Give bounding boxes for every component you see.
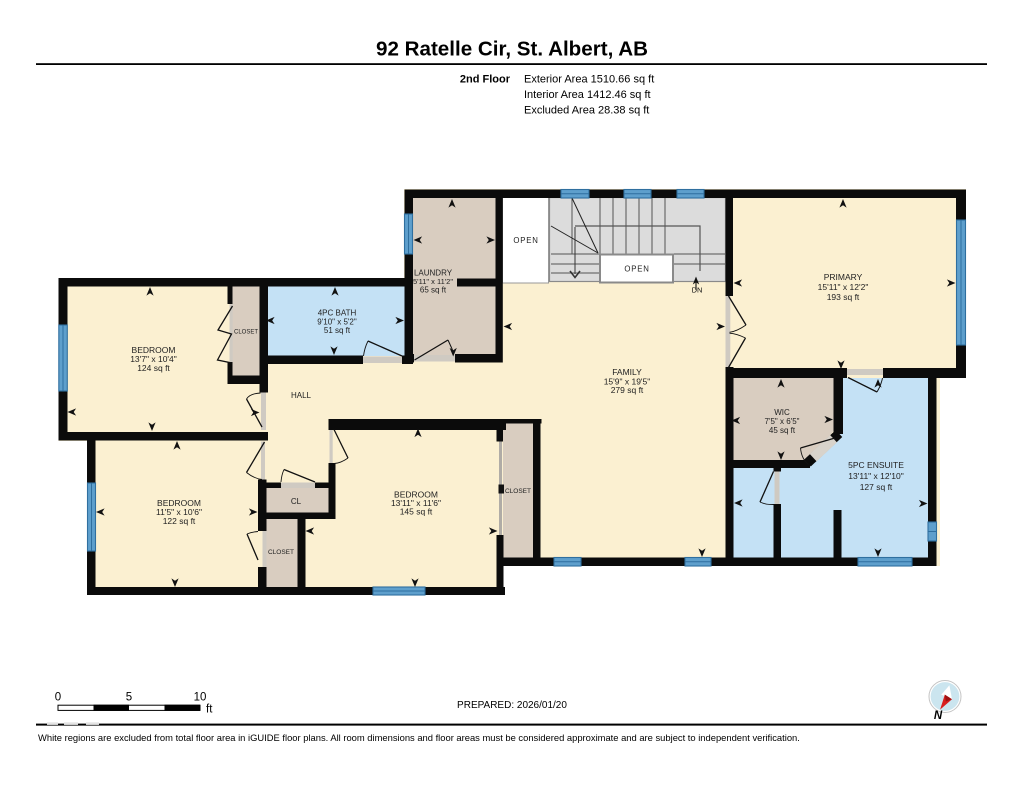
svg-text:13'11" x 12'10": 13'11" x 12'10" [848, 471, 903, 481]
svg-text:PRIMARY: PRIMARY [824, 272, 863, 282]
svg-text:CLOSET: CLOSET [268, 549, 294, 556]
svg-text:45 sq ft: 45 sq ft [769, 426, 796, 435]
svg-text:15'11" x 12'2": 15'11" x 12'2" [818, 282, 869, 292]
svg-text:10: 10 [194, 692, 207, 704]
svg-text:145 sq ft: 145 sq ft [400, 507, 433, 517]
svg-text:PREPARED: 2026/01/20: PREPARED: 2026/01/20 [457, 700, 567, 711]
svg-text:OPEN: OPEN [513, 236, 538, 245]
svg-text:122 sq ft: 122 sq ft [163, 516, 196, 526]
svg-text:WIC: WIC [774, 408, 790, 417]
svg-text:127 sq ft: 127 sq ft [860, 482, 893, 492]
svg-text:Interior Area 1412.46 sq ft: Interior Area 1412.46 sq ft [524, 89, 651, 101]
svg-text:CLOSET: CLOSET [234, 330, 258, 336]
svg-text:124 sq ft: 124 sq ft [137, 363, 170, 373]
svg-text:51 sq ft: 51 sq ft [324, 326, 351, 335]
svg-text:65 sq ft: 65 sq ft [420, 286, 447, 295]
svg-text:279 sq ft: 279 sq ft [611, 385, 644, 395]
svg-text:5PC ENSUITE: 5PC ENSUITE [848, 460, 904, 470]
svg-text:White regions are excluded fro: White regions are excluded from total fl… [38, 732, 800, 743]
svg-text:HALL: HALL [291, 391, 312, 400]
svg-text:2nd Floor: 2nd Floor [460, 74, 511, 86]
svg-text:4PC BATH: 4PC BATH [318, 309, 357, 318]
svg-text:Excluded Area 28.38 sq ft: Excluded Area 28.38 sq ft [524, 104, 649, 116]
svg-text:92 Ratelle Cir, St. Albert, AB: 92 Ratelle Cir, St. Albert, AB [376, 37, 648, 60]
svg-text:CLOSET: CLOSET [505, 488, 531, 495]
svg-text:CL: CL [291, 497, 302, 506]
svg-text:0: 0 [55, 692, 61, 704]
svg-text:5: 5 [126, 692, 132, 704]
svg-text:ft: ft [206, 704, 213, 716]
svg-text:Exterior Area 1510.66 sq ft: Exterior Area 1510.66 sq ft [524, 74, 654, 86]
svg-text:N: N [934, 710, 943, 722]
svg-text:FAMILY: FAMILY [612, 367, 642, 377]
svg-text:OPEN: OPEN [624, 265, 649, 274]
svg-text:193 sq ft: 193 sq ft [827, 292, 860, 302]
svg-text:7'5" x 6'5": 7'5" x 6'5" [765, 417, 800, 426]
